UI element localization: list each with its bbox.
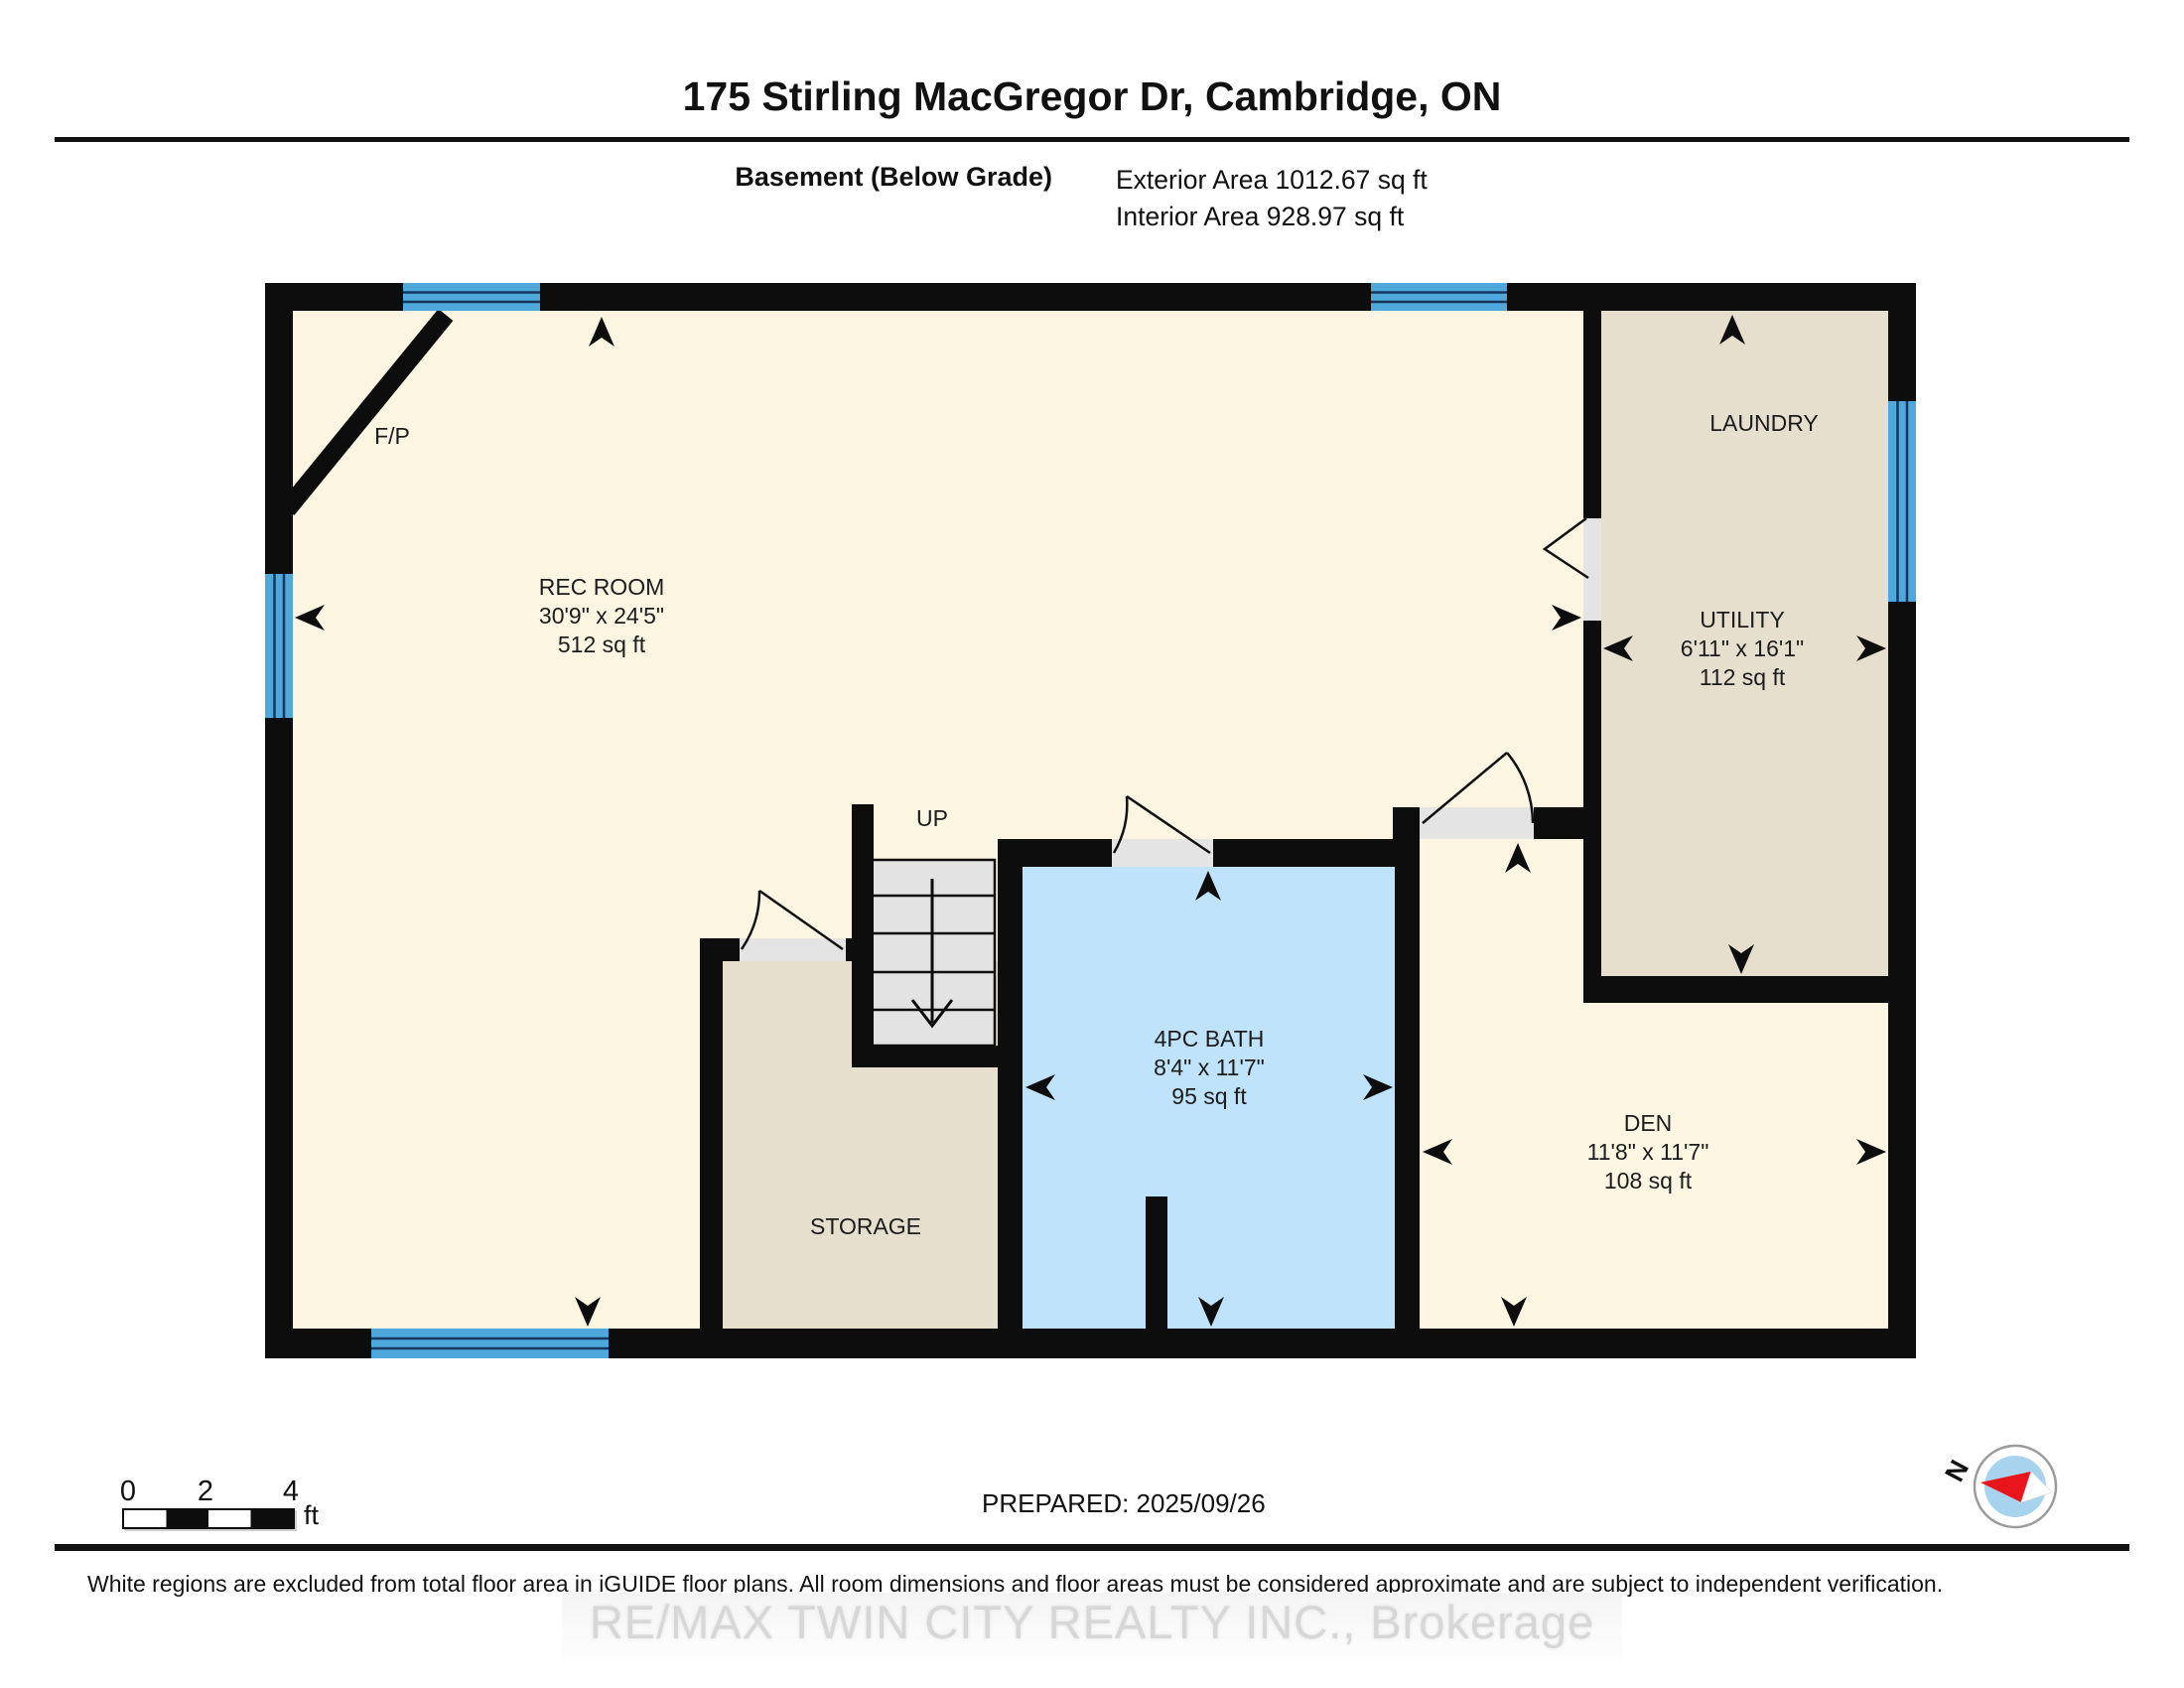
storage-door-sill (740, 938, 846, 961)
rec-room-area: 512 sq ft (539, 631, 665, 659)
wall-bath-top-right (1213, 839, 1420, 867)
compass-icon (1972, 1443, 2059, 1530)
floor-label: Basement (Below Grade) (735, 162, 1052, 193)
area-summary: Exterior Area 1012.67 sq ft Interior Are… (1116, 162, 1428, 235)
storage-label: STORAGE (810, 1213, 921, 1240)
window-bottom (371, 1329, 609, 1358)
wall-bath-left (998, 839, 1023, 1329)
rec-room-dimensions: 30'9" x 24'5" (539, 602, 665, 631)
laundry-label: LAUNDRY (1709, 410, 1819, 437)
wall-bath-right (1395, 807, 1420, 1329)
window-right (1888, 401, 1916, 602)
staircase (871, 860, 995, 1046)
bath-label: 4PC BATH 8'4" x 11'7" 95 sq ft (1154, 1025, 1265, 1111)
interior-area: Interior Area 928.97 sq ft (1116, 199, 1428, 235)
window-top-right (1371, 283, 1507, 311)
laundry-door-sill (1583, 518, 1601, 621)
utility-area: 112 sq ft (1681, 663, 1804, 692)
scale-tick-2: 2 (198, 1476, 213, 1508)
den-name: DEN (1587, 1109, 1709, 1138)
utility-label: UTILITY 6'11" x 16'1" 112 sq ft (1681, 606, 1804, 692)
wall-left (265, 283, 293, 1358)
footer-divider (55, 1544, 2129, 1551)
floorplan-drawing (265, 283, 1916, 1358)
prepared-date: PREPARED: 2025/09/26 (982, 1488, 1266, 1519)
den-area: 108 sq ft (1587, 1167, 1709, 1196)
brokerage-watermark: RE/MAX TWIN CITY REALTY INC., Brokerage (562, 1593, 1622, 1661)
wall-stairs-bottom (852, 1046, 1023, 1067)
compass-north-label: N (1939, 1456, 1976, 1487)
utility-name: UTILITY (1681, 606, 1804, 634)
den-dimensions: 11'8" x 11'7" (1587, 1138, 1709, 1167)
bath-area: 95 sq ft (1154, 1082, 1265, 1111)
wall-utility-bottom (1583, 976, 1888, 1003)
wall-den-door-right (1534, 807, 1601, 839)
utility-dimensions: 6'11" x 16'1" (1681, 634, 1804, 663)
floorplan-canvas: F/P UP REC ROOM 30'9" x 24'5" 512 sq ft … (265, 283, 1916, 1358)
wall-storage-top-right (846, 938, 874, 961)
bath-dimensions: 8'4" x 11'7" (1154, 1054, 1265, 1082)
stairs-up-label: UP (916, 805, 948, 832)
rec-room-name: REC ROOM (539, 573, 665, 602)
wall-storage-top-left (700, 938, 740, 961)
floorplan-page: 175 Stirling MacGregor Dr, Cambridge, ON… (0, 0, 2184, 1688)
exterior-area: Exterior Area 1012.67 sq ft (1116, 162, 1428, 199)
bath-name: 4PC BATH (1154, 1025, 1265, 1054)
scale-tick-0: 0 (120, 1476, 136, 1508)
title-divider (55, 137, 2129, 142)
scale-tick-4: 4 (283, 1476, 299, 1508)
rec-room-label: REC ROOM 30'9" x 24'5" 512 sq ft (539, 573, 665, 659)
scale-unit: ft (304, 1500, 319, 1531)
wall-bath-stub (1146, 1196, 1167, 1329)
window-top-left (403, 283, 540, 311)
window-left (265, 574, 293, 718)
scale-bar (122, 1508, 295, 1529)
wall-storage-left (700, 938, 723, 1329)
fireplace-label: F/P (374, 423, 410, 450)
wall-laundry-left-upper (1583, 311, 1601, 518)
page-title: 175 Stirling MacGregor Dr, Cambridge, ON (683, 73, 1502, 120)
wall-stairs-left (852, 804, 874, 1067)
den-label: DEN 11'8" x 11'7" 108 sq ft (1587, 1109, 1709, 1196)
